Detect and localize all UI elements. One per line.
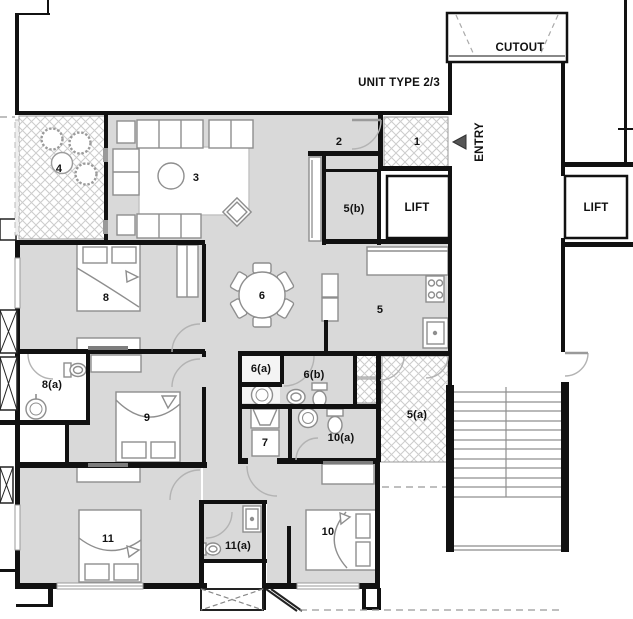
floorplan: UNIT TYPE 2/3 CUTOUT ENTRY LIFT LIFT 1 2… (0, 0, 633, 619)
room-label-8a: 8(a) (42, 379, 62, 391)
room-label-4: 4 (56, 163, 62, 175)
room-label-10: 10 (322, 526, 335, 538)
stairs (454, 387, 561, 550)
entry-arrow-icon (453, 135, 466, 149)
room-label-6a: 6(a) (251, 363, 271, 375)
room-label-1: 1 (414, 136, 420, 148)
room-label-9: 9 (144, 412, 150, 424)
room-label-6: 6 (259, 290, 265, 302)
room-label-5b: 5(b) (344, 203, 365, 215)
unit-type-title: UNIT TYPE 2/3 (358, 77, 440, 89)
room-label-11a: 11(a) (225, 540, 251, 552)
floorplan-drawing (0, 0, 633, 619)
entry-label: ENTRY (474, 122, 486, 162)
lift-right-label: LIFT (583, 202, 608, 214)
cutout-label: CUTOUT (496, 42, 545, 54)
lift-left-label: LIFT (404, 202, 429, 214)
room-label-7: 7 (262, 437, 268, 449)
cutout-box (447, 13, 567, 62)
room-label-6b: 6(b) (304, 369, 325, 381)
room-label-2: 2 (336, 136, 342, 148)
room-label-11: 11 (102, 533, 114, 545)
living-room-furniture (113, 120, 253, 238)
room-label-8: 8 (103, 292, 109, 304)
room-label-10a: 10(a) (328, 432, 355, 444)
room-label-5a: 5(a) (407, 409, 427, 421)
room-label-3: 3 (193, 172, 199, 184)
room-label-5: 5 (377, 304, 383, 316)
